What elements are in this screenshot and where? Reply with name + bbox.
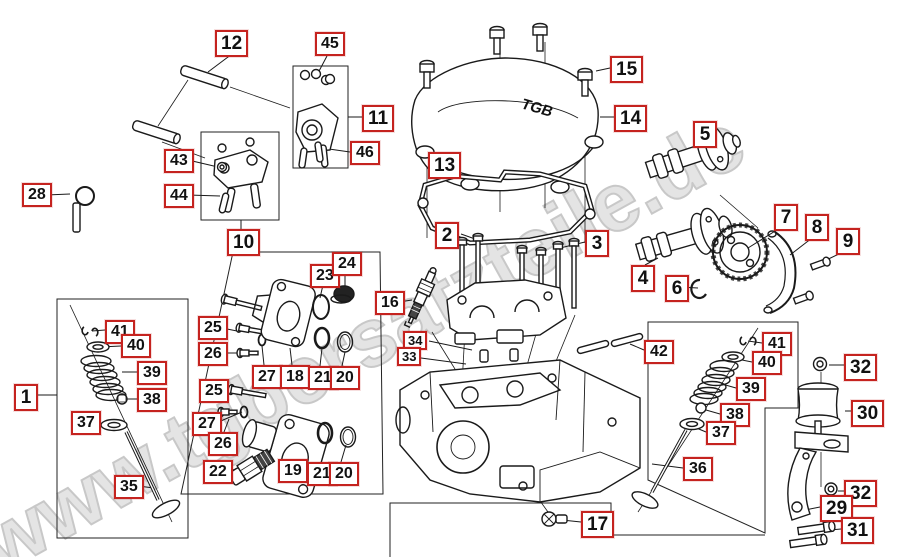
callout-38-left: 38 xyxy=(137,388,167,412)
callout-17: 17 xyxy=(581,511,614,538)
callout-37-left: 37 xyxy=(71,411,101,435)
callout-31: 31 xyxy=(841,517,874,544)
callout-25-upper: 25 xyxy=(198,316,228,340)
exploded-parts-diagram: www.tgbersatzteile.de xyxy=(0,0,901,557)
callout-4: 4 xyxy=(631,265,655,292)
rocker-shaft-pins xyxy=(132,65,230,145)
nut-32-top xyxy=(814,358,827,371)
hook-clip xyxy=(73,187,94,232)
callout-19: 19 xyxy=(278,459,308,483)
callout-33: 33 xyxy=(397,347,421,366)
callout-9: 9 xyxy=(836,228,860,255)
box-head-bottom xyxy=(390,503,765,557)
callout-39-right: 39 xyxy=(736,377,766,401)
cylinder-head xyxy=(396,360,640,502)
callout-45: 45 xyxy=(315,32,345,56)
callout-3: 3 xyxy=(585,230,609,257)
callout-27-upper: 27 xyxy=(252,365,282,389)
retaining-clip xyxy=(691,280,706,298)
callout-18: 18 xyxy=(280,365,310,389)
callout-12: 12 xyxy=(215,30,248,57)
callout-42: 42 xyxy=(644,340,674,364)
callout-40-right: 40 xyxy=(752,351,782,375)
callout-1: 1 xyxy=(14,384,38,411)
callout-8: 8 xyxy=(805,214,829,241)
callout-32-top: 32 xyxy=(844,354,877,381)
callout-2: 2 xyxy=(435,222,459,249)
callout-20-bottom: 20 xyxy=(329,462,359,486)
callout-26-lower: 26 xyxy=(208,432,238,456)
plate-bolts xyxy=(793,256,831,305)
callout-20-top: 20 xyxy=(330,366,360,390)
callout-14: 14 xyxy=(614,105,647,132)
callout-7: 7 xyxy=(774,204,798,231)
callout-6: 6 xyxy=(665,275,689,302)
callout-25-lower: 25 xyxy=(199,379,229,403)
callout-13: 13 xyxy=(428,152,461,179)
callout-11: 11 xyxy=(362,105,394,132)
drain-bolt xyxy=(542,512,567,526)
callout-43: 43 xyxy=(164,149,194,173)
callout-39-left: 39 xyxy=(137,361,167,385)
callout-15: 15 xyxy=(610,56,643,83)
callout-35: 35 xyxy=(114,475,144,499)
callout-5: 5 xyxy=(693,121,717,148)
guide-plate xyxy=(764,231,795,313)
callout-26-upper: 26 xyxy=(198,342,228,366)
callout-37-right: 37 xyxy=(706,421,736,445)
callout-44: 44 xyxy=(164,184,194,208)
diagram-artwork: www.tgbersatzteile.de xyxy=(0,0,901,557)
callout-10: 10 xyxy=(227,229,260,256)
bolts-31 xyxy=(790,521,836,549)
callout-36: 36 xyxy=(683,457,713,481)
callout-40-left: 40 xyxy=(121,334,151,358)
nut-32-bottom xyxy=(825,483,837,495)
callout-46: 46 xyxy=(350,141,380,165)
callout-24: 24 xyxy=(332,252,362,276)
studs-42 xyxy=(577,333,643,354)
callout-16: 16 xyxy=(375,291,405,315)
callout-28: 28 xyxy=(22,183,52,207)
callout-22: 22 xyxy=(203,460,233,484)
callout-30: 30 xyxy=(851,400,884,427)
